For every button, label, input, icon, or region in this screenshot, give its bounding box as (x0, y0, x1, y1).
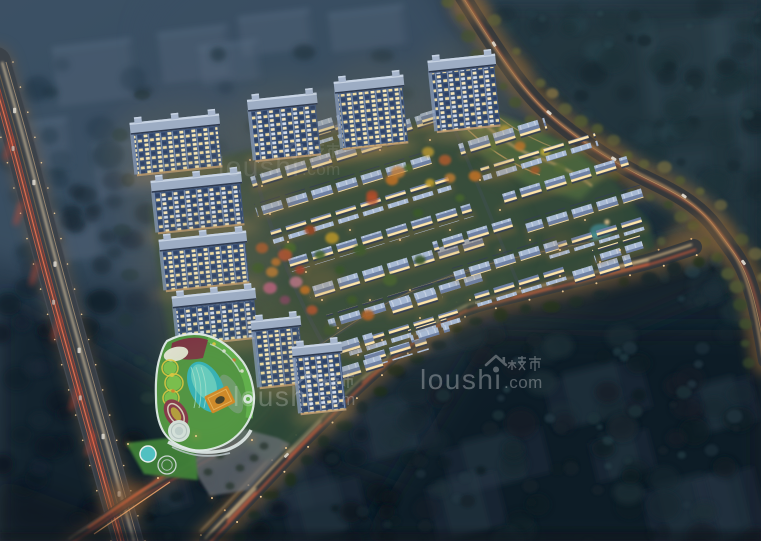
svg-text:.com: .com (317, 390, 356, 409)
svg-text:loushi: loushi (218, 151, 300, 182)
svg-text:.com: .com (302, 160, 341, 179)
svg-text:loushi: loushi (233, 381, 315, 412)
svg-text:.com: .com (504, 373, 543, 392)
svg-text:loushi: loushi (420, 364, 502, 395)
